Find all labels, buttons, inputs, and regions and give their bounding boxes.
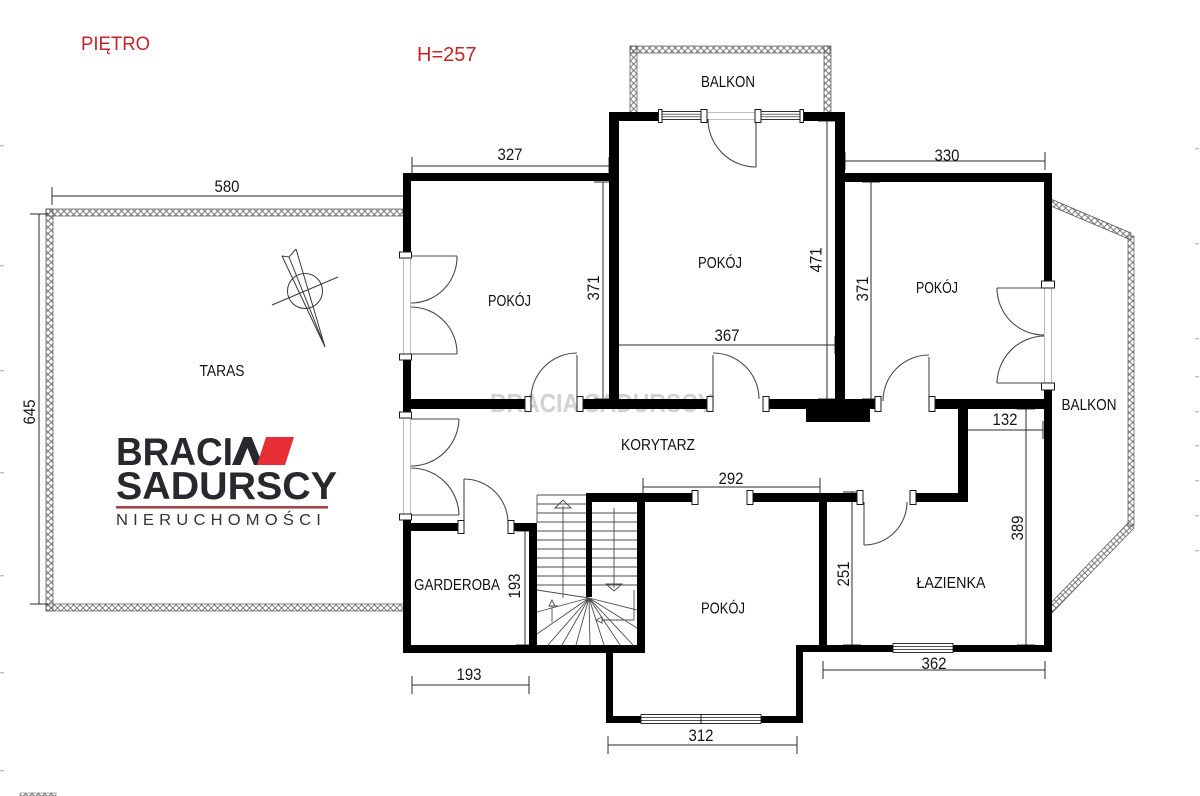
svg-text:645: 645 bbox=[21, 400, 39, 425]
svg-text:580: 580 bbox=[215, 178, 240, 196]
svg-text:ŁAZIENKA: ŁAZIENKA bbox=[917, 575, 986, 592]
svg-text:312: 312 bbox=[689, 727, 714, 745]
svg-text:PIĘTRO: PIĘTRO bbox=[81, 33, 150, 55]
svg-text:BALKON: BALKON bbox=[701, 74, 755, 91]
svg-text:132: 132 bbox=[993, 411, 1018, 429]
svg-text:330: 330 bbox=[935, 147, 960, 165]
svg-text:362: 362 bbox=[922, 655, 947, 673]
svg-text:471: 471 bbox=[808, 248, 826, 273]
svg-text:GARDEROBA: GARDEROBA bbox=[414, 577, 501, 594]
svg-text:NIERUCHOMOŚCI: NIERUCHOMOŚCI bbox=[116, 510, 326, 529]
svg-text:371: 371 bbox=[585, 276, 603, 301]
svg-text:POKÓJ: POKÓJ bbox=[698, 253, 742, 272]
svg-text:367: 367 bbox=[715, 327, 740, 345]
svg-text:H=257: H=257 bbox=[417, 44, 477, 66]
svg-text:POKÓJ: POKÓJ bbox=[488, 291, 531, 310]
svg-text:POKÓJ: POKÓJ bbox=[916, 278, 958, 297]
svg-text:193: 193 bbox=[457, 666, 482, 684]
svg-text:251: 251 bbox=[835, 562, 853, 587]
svg-text:389: 389 bbox=[1009, 516, 1027, 541]
svg-text:TARAS: TARAS bbox=[200, 363, 245, 380]
svg-text:BALKON: BALKON bbox=[1062, 397, 1117, 414]
svg-text:371: 371 bbox=[854, 277, 872, 302]
svg-text:SADURSCY: SADURSCY bbox=[116, 465, 337, 508]
svg-text:POKÓJ: POKÓJ bbox=[701, 599, 745, 618]
svg-text:KORYTARZ: KORYTARZ bbox=[621, 437, 695, 454]
svg-text:193: 193 bbox=[506, 574, 524, 599]
svg-text:292: 292 bbox=[719, 470, 744, 488]
svg-text:327: 327 bbox=[498, 146, 523, 164]
